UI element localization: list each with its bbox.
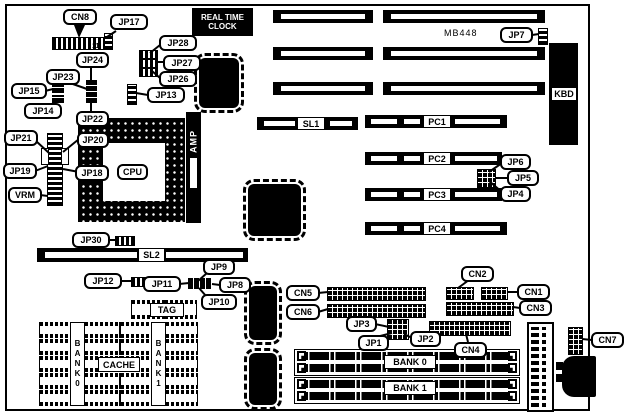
- qfp-chip-middle: [248, 184, 301, 236]
- power-connector: [527, 322, 554, 412]
- jp28-jumper: [139, 50, 158, 59]
- label-jp5: JP5: [507, 170, 539, 186]
- label-cpu: CPU: [117, 164, 148, 180]
- din-nub1: [556, 362, 563, 370]
- label-jp2: JP2: [410, 331, 441, 347]
- sl2-key-right: [166, 252, 243, 258]
- vrm-header-tab-right: [61, 148, 69, 165]
- isa-slot-1-left-key: [281, 14, 365, 19]
- label-jp23: JP23: [46, 69, 80, 85]
- din-nub2: [556, 374, 563, 382]
- pc2-key2: [404, 156, 420, 161]
- label-pc4: PC4: [423, 222, 451, 235]
- rtc-chip: REAL TIME CLOCK: [192, 8, 253, 36]
- isa-slot-1-right-key: [391, 14, 537, 19]
- pc3-key2: [404, 192, 420, 197]
- rtc-line2: CLOCK: [208, 22, 236, 31]
- pc1-key1: [371, 119, 397, 124]
- cn1-header: [481, 287, 508, 300]
- jp5-jumper-block: [477, 169, 496, 188]
- din-connector: [562, 356, 596, 397]
- label-sl1: SL1: [297, 117, 325, 130]
- sl1-key-left: [264, 121, 295, 126]
- label-jp27: JP27: [163, 55, 201, 71]
- label-cn2: CN2: [461, 266, 494, 282]
- power-pins-left: [531, 327, 539, 407]
- label-cache: CACHE: [98, 357, 140, 372]
- pc1-key2: [404, 119, 420, 124]
- label-jp6: JP6: [500, 154, 531, 170]
- label-jp13: JP13: [147, 87, 185, 103]
- label-cn8: CN8: [63, 9, 97, 25]
- pc4-key2: [404, 226, 420, 231]
- pc4-key1: [371, 226, 397, 231]
- label-bank0-simm: BANK 0: [384, 355, 436, 369]
- label-cn1: CN1: [517, 284, 550, 300]
- label-cn4: CN4: [454, 342, 487, 358]
- simm-clip: [297, 391, 306, 401]
- sl1-key-right: [330, 121, 352, 126]
- pc2-key1: [371, 156, 397, 161]
- jp30-jumper: [115, 236, 135, 246]
- label-pc3: PC3: [423, 188, 451, 201]
- jp15-jumper: [52, 85, 64, 93]
- isa-slot-3-left-key: [281, 86, 365, 91]
- jp3-jumper-block: [387, 319, 409, 340]
- label-jp21: JP21: [4, 130, 38, 146]
- label-jp17: JP17: [110, 14, 148, 30]
- cn4-header: [429, 321, 511, 336]
- simm-clip: [297, 379, 306, 389]
- label-tag: TAG: [150, 303, 184, 317]
- vrm-header: [47, 133, 63, 206]
- label-cn7: CN7: [591, 332, 624, 348]
- label-pc2: PC2: [423, 152, 451, 165]
- label-cn5: CN5: [286, 285, 320, 301]
- jp26-jumper: [139, 68, 158, 77]
- label-jp24: JP24: [76, 52, 109, 68]
- simm-clip: [297, 351, 306, 361]
- label-bank1-simm: BANK 1: [384, 381, 436, 395]
- label-jp1: JP1: [358, 335, 389, 351]
- simm-clip: [508, 391, 517, 401]
- vrm-header-tab-left: [41, 148, 49, 165]
- label-jp11: JP11: [143, 276, 181, 292]
- motherboard-diagram: REAL TIME CLOCK MB448 11 SL1 PC1 PC2 PC3…: [0, 0, 625, 416]
- pin1-marker: 11: [92, 43, 99, 50]
- jp14-jumper: [52, 95, 64, 103]
- label-jp14: JP14: [24, 103, 62, 119]
- label-jp19: JP19: [3, 163, 37, 179]
- pc1-key3: [455, 119, 500, 124]
- amp-socket-handle: AMP: [186, 112, 201, 223]
- label-jp28: JP28: [159, 35, 197, 51]
- jp27-jumper: [139, 59, 158, 68]
- label-jp3: JP3: [346, 316, 377, 332]
- cn3-header: [446, 302, 514, 316]
- pc4-key3: [455, 226, 500, 231]
- label-jp18: JP18: [75, 165, 109, 181]
- simm-clip: [508, 379, 517, 389]
- label-cn3: CN3: [519, 300, 552, 316]
- jp13-jumper: [127, 84, 137, 105]
- cn7-connector: [568, 327, 583, 355]
- cn2-header: [446, 287, 474, 300]
- label-jp12: JP12: [84, 273, 122, 289]
- label-vrm: VRM: [8, 187, 42, 203]
- cn5-header: [327, 287, 426, 301]
- label-bank0-cache: BANK0: [70, 322, 85, 406]
- isa-slot-3-right-key: [391, 86, 537, 91]
- label-jp8: JP8: [219, 277, 251, 293]
- qfp-chip-bottom1: [249, 286, 277, 340]
- isa-slot-2-right-key: [391, 51, 537, 56]
- rtc-line1: REAL TIME: [201, 13, 244, 22]
- label-pc1: PC1: [423, 115, 451, 128]
- pc3-key1: [371, 192, 397, 197]
- jp11-jumper-block: [188, 278, 212, 289]
- sl2-key-left: [45, 252, 137, 258]
- jp17-jumper: [104, 33, 113, 50]
- isa-slot-2-left-key: [281, 51, 365, 56]
- label-jp7: JP7: [500, 27, 533, 43]
- jp24-jumper-block: [86, 80, 97, 103]
- label-jp30: JP30: [72, 232, 110, 248]
- power-pins-right: [542, 327, 546, 407]
- jp7-jumper: [538, 28, 548, 45]
- simm-clip: [508, 351, 517, 361]
- simm-clip: [508, 363, 517, 373]
- amp-slot: [190, 158, 197, 188]
- pc2-key3: [455, 156, 497, 161]
- qfp-chip-top: [199, 58, 239, 108]
- label-bank1-cache: BANK1: [151, 322, 166, 406]
- simm-clip: [297, 363, 306, 373]
- label-jp10: JP10: [201, 294, 237, 310]
- label-jp20: JP20: [77, 132, 109, 148]
- qfp-chip-bottom2: [249, 353, 277, 405]
- cn6-header: [327, 304, 426, 318]
- label-sl2: SL2: [138, 248, 165, 262]
- label-jp26: JP26: [159, 71, 197, 87]
- label-cn6: CN6: [286, 304, 320, 320]
- label-jp15: JP15: [11, 83, 47, 99]
- pc3-key3: [455, 192, 497, 197]
- label-kbd: KBD: [551, 87, 577, 101]
- label-jp22: JP22: [76, 111, 109, 127]
- label-jp4: JP4: [500, 186, 531, 202]
- label-jp9: JP9: [203, 259, 235, 275]
- model-text: MB448: [444, 28, 478, 38]
